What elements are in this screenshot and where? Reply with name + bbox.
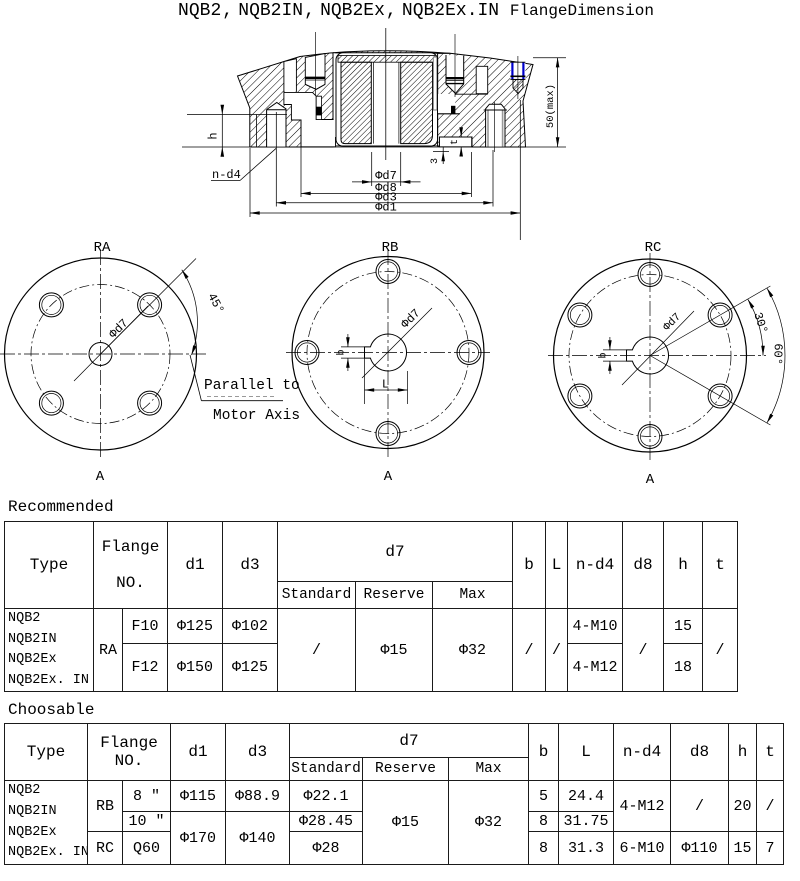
svg-text:t: t: [450, 139, 461, 145]
svg-text:RC: RC: [645, 240, 662, 256]
svg-text:Φd7: Φd7: [398, 306, 423, 331]
svg-text:Motor Axis: Motor Axis: [213, 408, 300, 424]
svg-text:50(max): 50(max): [545, 84, 557, 128]
svg-text:A: A: [96, 469, 105, 485]
svg-text:Φd1: Φd1: [375, 201, 397, 215]
svg-text:45°: 45°: [204, 291, 227, 317]
svg-text:Φd7: Φd7: [661, 311, 683, 333]
svg-text:60°: 60°: [770, 343, 785, 365]
svg-text:30°: 30°: [750, 311, 770, 336]
svg-text:RA: RA: [94, 240, 111, 256]
svg-text:A: A: [646, 472, 655, 488]
svg-text:3: 3: [430, 158, 441, 164]
svg-text:n-d4: n-d4: [212, 168, 241, 182]
svg-text:b: b: [335, 349, 347, 355]
svg-text:A: A: [384, 469, 393, 485]
svg-text:b: b: [597, 352, 609, 358]
svg-text:RB: RB: [382, 240, 399, 256]
svg-text:Φd7: Φd7: [106, 316, 131, 341]
svg-text:L: L: [382, 378, 389, 392]
svg-text:Parallel to: Parallel to: [204, 378, 300, 394]
svg-text:h: h: [207, 132, 221, 139]
